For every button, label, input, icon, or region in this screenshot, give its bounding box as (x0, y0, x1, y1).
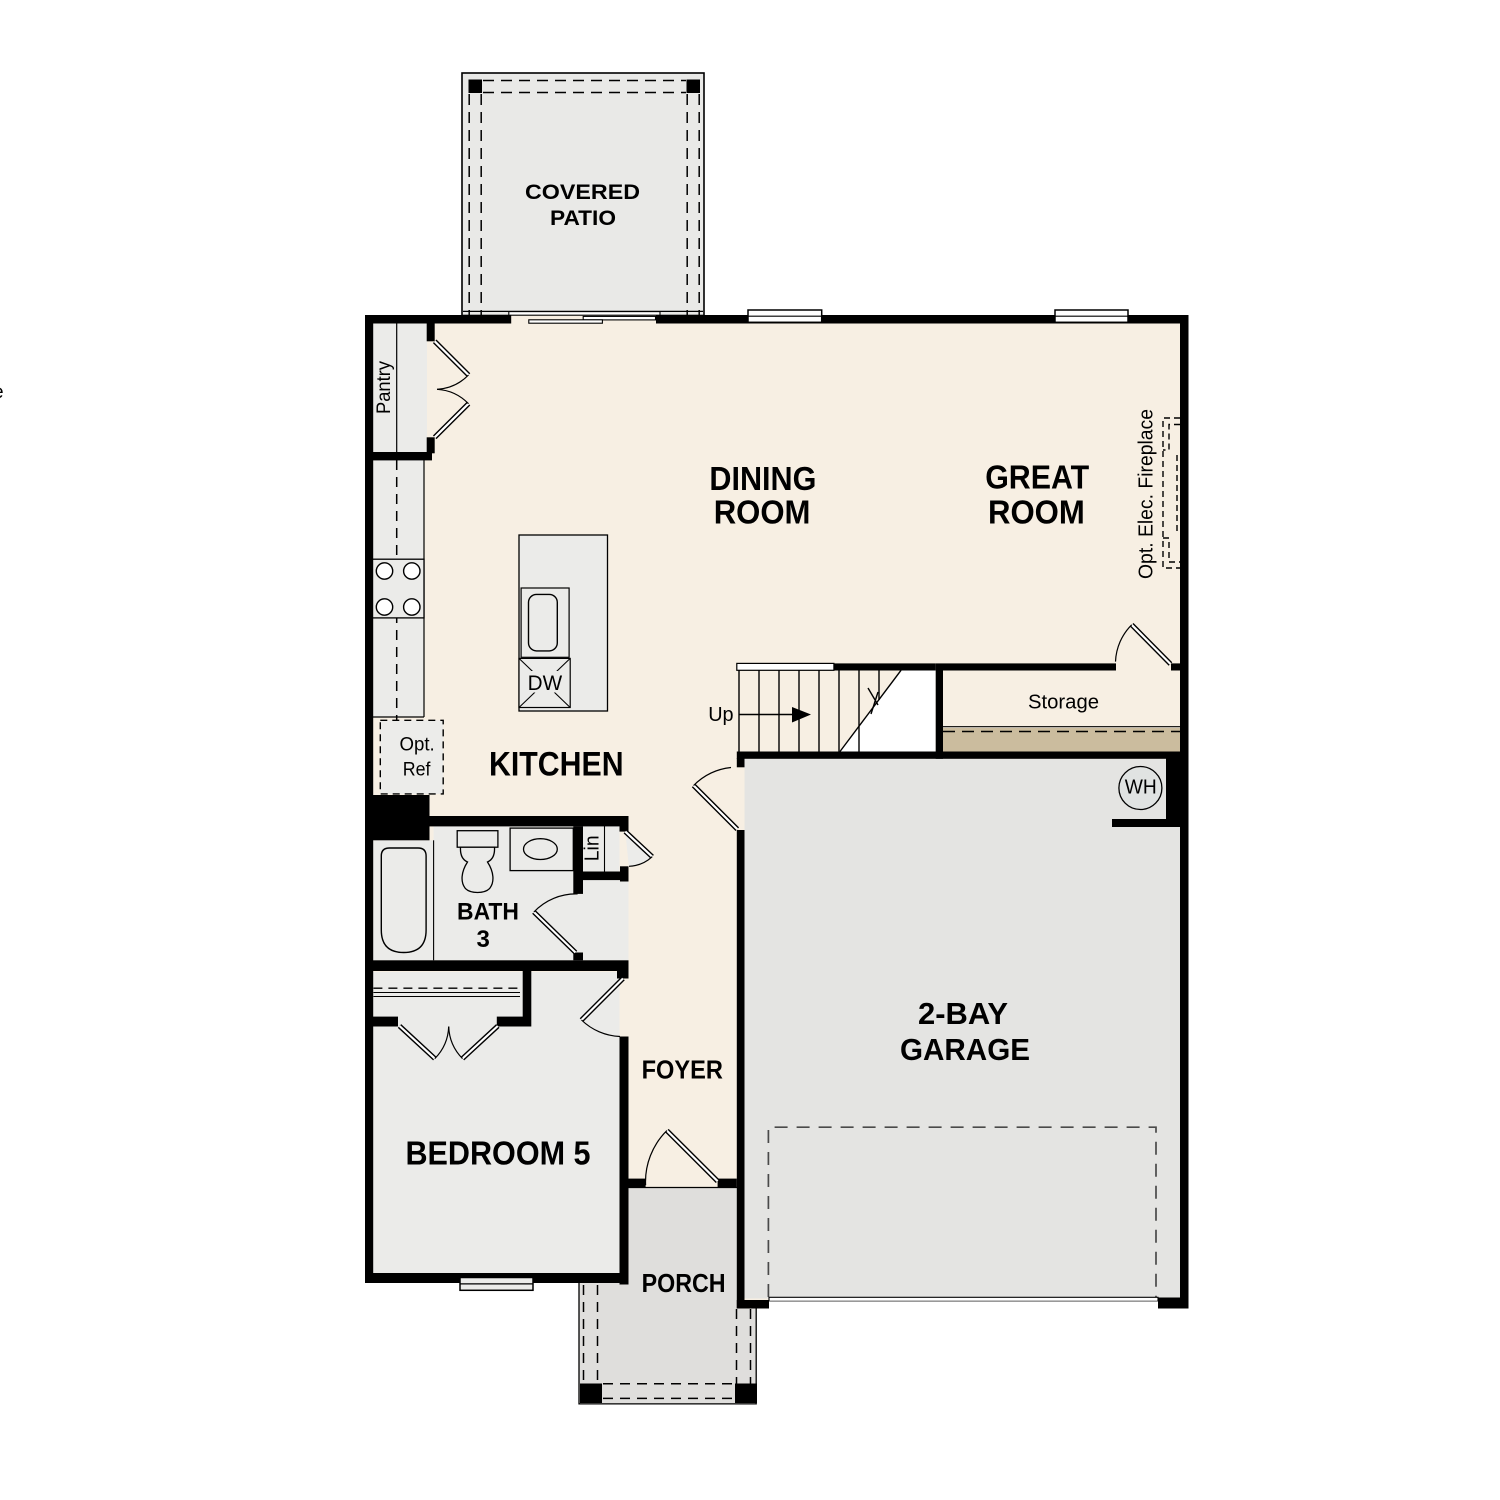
svg-text:ROOM: ROOM (988, 494, 1085, 531)
svg-text:GREAT: GREAT (985, 458, 1089, 495)
svg-text:FOYER: FOYER (642, 1055, 723, 1085)
svg-text:3: 3 (477, 926, 490, 953)
svg-text:Pantry: Pantry (374, 361, 395, 414)
svg-text:Lin: Lin (581, 835, 603, 861)
svg-text:KITCHEN: KITCHEN (489, 746, 624, 784)
svg-text:COVERED: COVERED (525, 181, 640, 204)
svg-text:WH: WH (1125, 777, 1157, 799)
svg-text:Opt.: Opt. (400, 734, 435, 755)
svg-text:2-BAY: 2-BAY (918, 996, 1008, 1031)
svg-text:DINING: DINING (709, 460, 816, 497)
svg-text:Up: Up (708, 703, 733, 726)
svg-text:BATH: BATH (457, 899, 519, 926)
svg-text:Storage: Storage (1028, 691, 1099, 713)
svg-text:e: e (0, 382, 4, 403)
svg-text:DW: DW (528, 672, 563, 695)
svg-text:PORCH: PORCH (642, 1268, 726, 1298)
svg-text:Ref: Ref (403, 759, 431, 780)
svg-text:PATIO: PATIO (550, 207, 616, 230)
svg-text:GARAGE: GARAGE (900, 1032, 1030, 1067)
svg-text:Opt. Elec. Fireplace: Opt. Elec. Fireplace (1136, 409, 1158, 579)
svg-text:BEDROOM 5: BEDROOM 5 (406, 1135, 591, 1172)
svg-text:ROOM: ROOM (714, 494, 811, 531)
